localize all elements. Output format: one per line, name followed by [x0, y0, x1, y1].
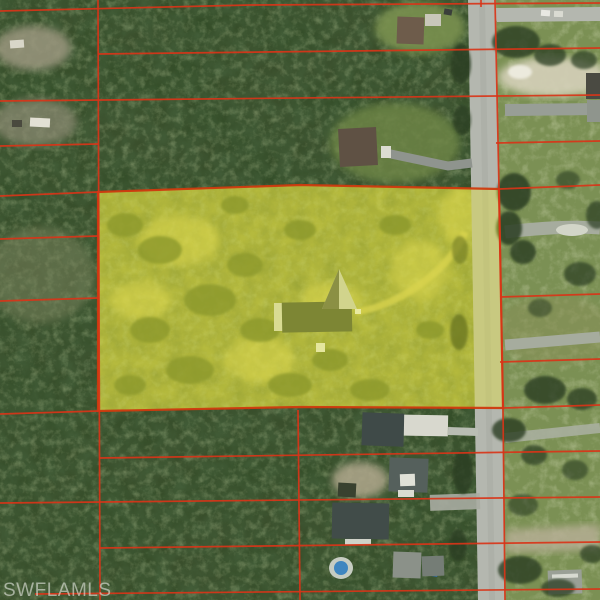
house-roof — [332, 503, 390, 540]
swimming-pool — [334, 561, 348, 575]
house-roof — [361, 412, 404, 446]
car — [554, 11, 563, 17]
garage-roof — [425, 14, 441, 26]
car — [541, 10, 550, 17]
aerial-parcel-map[interactable]: SWFLAMLS — [0, 0, 600, 600]
mls-watermark: SWFLAMLS — [3, 580, 112, 600]
house-roof — [397, 17, 425, 45]
sand-patch — [508, 65, 532, 79]
shed-roof — [381, 146, 391, 158]
house-roof — [587, 100, 600, 122]
concrete-pad — [404, 415, 448, 437]
driveway-sand — [556, 224, 588, 236]
house-roof — [393, 552, 422, 579]
driveway-pad — [430, 493, 481, 511]
shed-roof — [338, 483, 357, 498]
shed-roof — [12, 120, 22, 127]
driveway — [448, 431, 478, 432]
trailer — [10, 40, 25, 49]
map-canvas: SWFLAMLS — [0, 0, 600, 600]
shed-roof — [400, 474, 415, 487]
driveway — [505, 109, 600, 110]
highlighted-parcel-overlay — [98, 185, 503, 411]
porch-roof — [398, 490, 414, 497]
house-roof — [338, 127, 378, 167]
house-roof — [422, 556, 445, 577]
trailer — [30, 117, 50, 127]
